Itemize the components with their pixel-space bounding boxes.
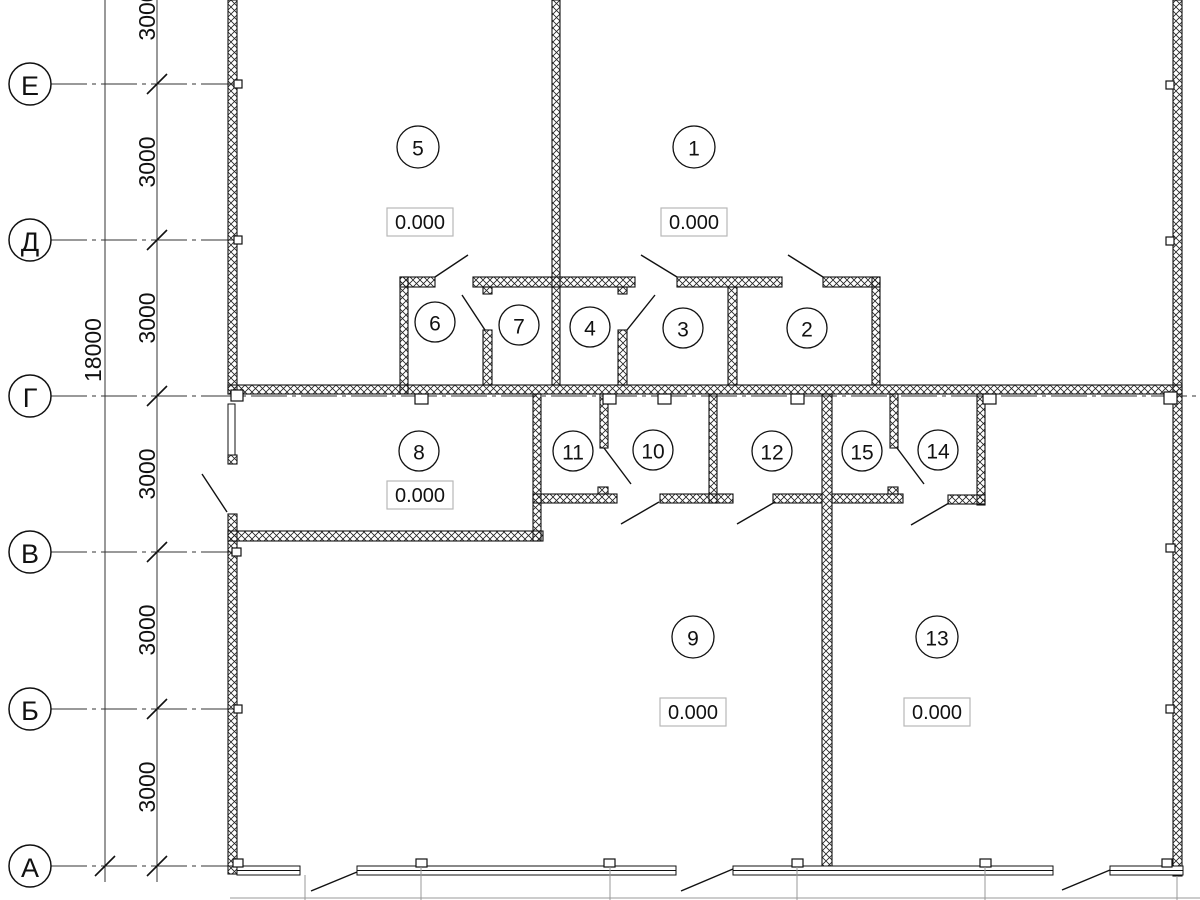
door-leaf-room2 (788, 255, 823, 277)
room-number-11: 11 (562, 442, 584, 465)
room-number-14: 14 (926, 441, 950, 464)
wall-p11-10-jamb (598, 487, 608, 494)
wall-10-12 (709, 394, 717, 503)
room-number-4: 4 (584, 318, 596, 341)
room-number-7: 7 (513, 316, 525, 339)
room-number-2: 2 (801, 319, 813, 342)
wall-p15-14 (890, 394, 898, 448)
elevation-value-room13: 0.000 (912, 702, 962, 724)
window-left-wall (228, 404, 235, 455)
dim-segment-label: 3000 (134, 448, 160, 499)
wall-left-jamb (228, 455, 237, 464)
room-number-3: 3 (677, 319, 689, 342)
door-leaf-entry-2 (681, 869, 733, 891)
marker (980, 859, 991, 867)
marker (791, 394, 804, 404)
room-number-10: 10 (641, 441, 664, 464)
room-number-8: 8 (413, 442, 425, 465)
door-leaf-room12 (737, 502, 775, 524)
elevation-value-room8: 0.000 (395, 485, 445, 507)
wall-band-top-3 (677, 277, 782, 287)
marker (233, 859, 243, 867)
elevation-value-room1: 0.000 (669, 212, 719, 234)
dim-segment-label: 3000 (134, 0, 160, 41)
wall-axis-g (228, 385, 1182, 394)
elevation-value-room5: 0.000 (395, 212, 445, 234)
door-leaf-p11-10 (604, 448, 631, 484)
wall-9-13 (822, 394, 832, 868)
door-leaf-entry-1 (311, 872, 357, 891)
dim-total-label: 18000 (80, 318, 106, 382)
marker (234, 705, 242, 713)
marker (604, 859, 615, 867)
axis-label-a: А (21, 853, 39, 883)
axis-label-g: Г (23, 383, 38, 413)
wall-left-bottom (228, 514, 237, 874)
marker (231, 390, 243, 401)
axis-label-d: Д (21, 227, 39, 257)
wall-room6-left (400, 277, 408, 394)
wall-right (1173, 0, 1182, 876)
axis-letters: Е Д Г В Б А (21, 71, 39, 883)
door-leaf-p67 (462, 295, 485, 330)
marker (234, 236, 242, 244)
wall-center-top (552, 0, 560, 385)
marker (603, 394, 616, 404)
door-leaf-left-wall (202, 474, 227, 512)
door-leaf-room14 (911, 503, 949, 525)
door-leaves (202, 255, 1110, 891)
marker (1162, 859, 1172, 867)
wall-markers (231, 80, 1177, 867)
door-leaf-room10 (621, 502, 659, 524)
marker (983, 394, 996, 404)
wall-p43-jamb (618, 287, 627, 294)
wall-p67-jamb (483, 287, 492, 294)
wall-band-top-2 (473, 277, 635, 287)
wall-bottom-room11 (533, 494, 617, 503)
marker (1166, 544, 1175, 552)
room-number-13: 13 (925, 628, 948, 651)
room-number-6: 6 (429, 313, 441, 336)
room-number-15: 15 (850, 442, 873, 465)
floor-plan-drawing: 3000 3000 3000 3000 3000 3000 18000 Е Д … (0, 0, 1200, 900)
marker (1166, 237, 1174, 245)
marker (415, 394, 428, 404)
room-number-5: 5 (412, 138, 424, 161)
floor-plan-canvas: 3000 3000 3000 3000 3000 3000 18000 Е Д … (0, 0, 1200, 900)
marker (1166, 81, 1174, 89)
wall-p43 (618, 330, 627, 385)
dim-segment-label: 3000 (134, 292, 160, 343)
dim-segment-label: 3000 (134, 136, 160, 187)
door-leaf-p43 (627, 295, 655, 330)
marker (1166, 705, 1174, 713)
wall-room14-right (977, 394, 985, 505)
axis-label-b: Б (21, 696, 39, 726)
marker (658, 394, 671, 404)
wall-bottom-room12 (773, 494, 822, 503)
door-leaf-entry-3 (1062, 870, 1110, 890)
wall-room8-bottom (228, 531, 543, 541)
axis-label-e: Е (21, 71, 39, 101)
wall-room2-right (872, 277, 880, 385)
wall-p67 (483, 330, 492, 385)
dim-segment-label: 3000 (134, 761, 160, 812)
door-leaf-room1-3 (641, 255, 677, 277)
wall-bottom-room15 (832, 494, 903, 503)
marker (416, 859, 427, 867)
dim-segment-label: 3000 (134, 604, 160, 655)
wall-bottom-room10 (660, 494, 733, 503)
wall-8-11 (533, 394, 541, 541)
axis-bubbles (9, 63, 51, 887)
wall-p15-14-jamb (888, 487, 898, 494)
wall-p32 (728, 287, 737, 385)
axis-label-v: В (21, 539, 39, 569)
marker (1164, 392, 1177, 404)
room-number-1: 1 (688, 138, 700, 161)
marker (232, 548, 241, 556)
elevation-value-room9: 0.000 (668, 702, 718, 724)
marker (234, 80, 242, 88)
dimension-labels: 3000 3000 3000 3000 3000 3000 18000 (80, 0, 160, 813)
wall-left-top (228, 0, 237, 394)
door-leaf-room6 (435, 255, 468, 277)
room-number-9: 9 (687, 628, 699, 651)
marker (792, 859, 803, 867)
wall-bottom-room14 (948, 495, 985, 504)
room-number-12: 12 (760, 442, 783, 465)
dimension-lines (105, 0, 157, 882)
